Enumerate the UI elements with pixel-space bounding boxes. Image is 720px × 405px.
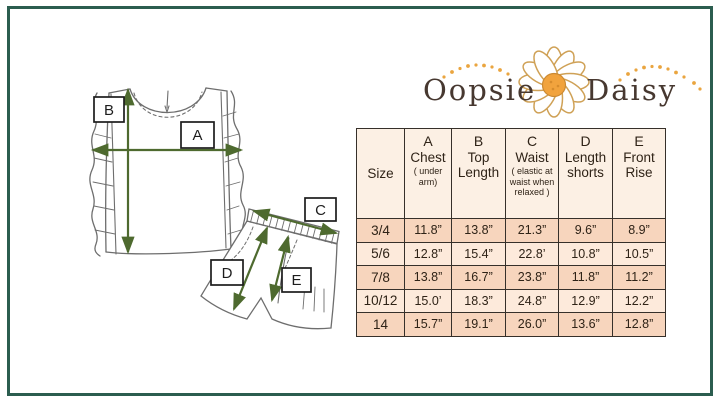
size-cell: 7/8 xyxy=(357,266,405,290)
label-letter-b: B xyxy=(104,102,114,119)
logo-word-daisy: Daisy xyxy=(586,73,677,107)
front-rise-value: 11.2” xyxy=(613,266,666,290)
front-rise-value: 10.5” xyxy=(613,242,666,266)
waist-value: 24.8” xyxy=(506,289,559,313)
logo-word-oopsie: Oopsie xyxy=(423,73,536,107)
front-rise-value: 12.8” xyxy=(613,313,666,337)
chest-value: 15.0’ xyxy=(405,289,452,313)
size-chart-image: B A C D E xyxy=(0,0,720,405)
size-cell: 3/4 xyxy=(357,219,405,243)
column-header-top-length: B Top Length xyxy=(452,129,506,219)
column-letter: A xyxy=(405,133,451,150)
column-title: Waist xyxy=(506,150,558,166)
table-row-size-3-4: 3/4 11.8” 13.8” 21.3” 9.6” 8.9” xyxy=(357,219,666,243)
label-letter-a: A xyxy=(192,127,202,144)
column-letter: B xyxy=(452,133,505,150)
label-letter-d: D xyxy=(222,265,233,282)
size-table-container: Size A Chest ( under arm) B Top Length C… xyxy=(356,128,666,337)
column-letter: E xyxy=(613,133,665,150)
size-cell: 14 xyxy=(357,313,405,337)
chest-value: 11.8” xyxy=(405,219,452,243)
shorts-length-value: 11.8” xyxy=(559,266,613,290)
column-title: Size xyxy=(357,166,404,182)
column-header-chest: A Chest ( under arm) xyxy=(405,129,452,219)
label-letter-e: E xyxy=(291,272,301,289)
size-cell: 10/12 xyxy=(357,289,405,313)
shorts-length-value: 13.6” xyxy=(559,313,613,337)
brand-logo: Oopsie Daisy xyxy=(423,47,702,117)
table-header-row: Size A Chest ( under arm) B Top Length C… xyxy=(357,129,666,219)
column-header-shorts-length: D Length shorts xyxy=(559,129,613,219)
top-length-value: 18.3” xyxy=(452,289,506,313)
size-cell: 5/6 xyxy=(357,242,405,266)
column-letter: D xyxy=(559,133,612,150)
top-length-value: 19.1” xyxy=(452,313,506,337)
column-title: Front Rise xyxy=(613,150,665,181)
label-letter-c: C xyxy=(315,202,326,219)
waist-value: 22.8’ xyxy=(506,242,559,266)
column-note: ( elastic at waist when relaxed ) xyxy=(506,166,558,197)
shorts-length-value: 12.9” xyxy=(559,289,613,313)
table-row-size-10-12: 10/12 15.0’ 18.3” 24.8” 12.9” 12.2” xyxy=(357,289,666,313)
front-rise-value: 12.2” xyxy=(613,289,666,313)
column-note: ( under arm) xyxy=(405,166,451,187)
table-row-size-5-6: 5/6 12.8” 15.4” 22.8’ 10.8” 10.5” xyxy=(357,242,666,266)
chest-value: 13.8” xyxy=(405,266,452,290)
chest-value: 15.7” xyxy=(405,313,452,337)
column-letter: C xyxy=(506,133,558,150)
column-title: Top Length xyxy=(452,150,505,181)
waist-value: 23.8” xyxy=(506,266,559,290)
waist-value: 26.0” xyxy=(506,313,559,337)
top-length-value: 13.8” xyxy=(452,219,506,243)
top-length-value: 15.4” xyxy=(452,242,506,266)
column-header-size: Size xyxy=(357,129,405,219)
column-header-waist: C Waist ( elastic at waist when relaxed … xyxy=(506,129,559,219)
waist-value: 21.3” xyxy=(506,219,559,243)
table-row-size-14: 14 15.7” 19.1” 26.0” 13.6” 12.8” xyxy=(357,313,666,337)
size-table: Size A Chest ( under arm) B Top Length C… xyxy=(356,128,666,337)
shorts-length-value: 10.8” xyxy=(559,242,613,266)
chest-value: 12.8” xyxy=(405,242,452,266)
table-row-size-7-8: 7/8 13.8” 16.7” 23.8” 11.8” 11.2” xyxy=(357,266,666,290)
shorts-length-value: 9.6” xyxy=(559,219,613,243)
front-rise-value: 8.9” xyxy=(613,219,666,243)
column-title: Chest xyxy=(405,150,451,166)
top-length-value: 16.7” xyxy=(452,266,506,290)
column-header-front-rise: E Front Rise xyxy=(613,129,666,219)
column-title: Length shorts xyxy=(559,150,612,181)
